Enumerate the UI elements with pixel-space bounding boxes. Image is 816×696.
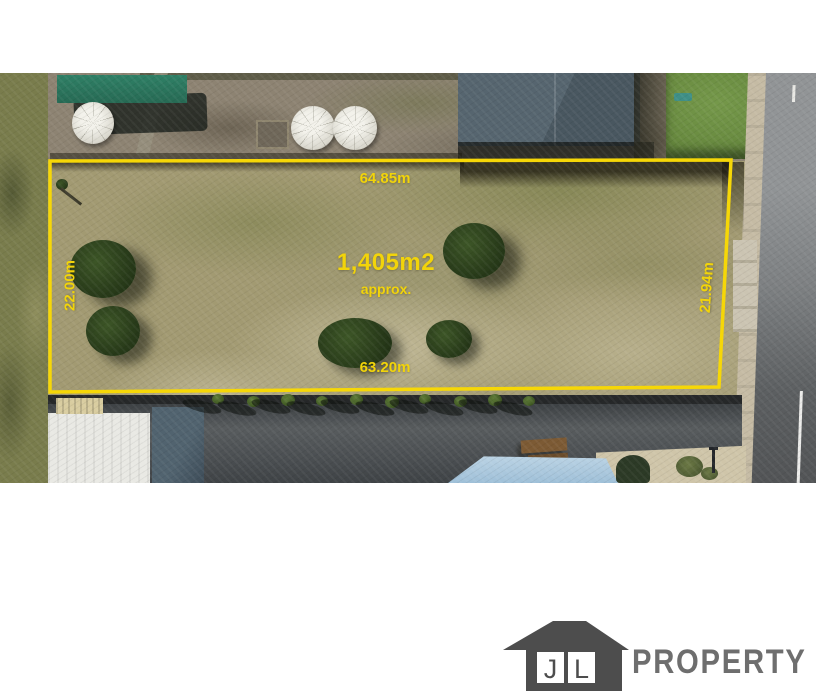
property-listing-image: 64.85m 1,405m2 approx. 63.20m 22.00m 21.… (0, 0, 816, 696)
logo-initial-l: L (574, 654, 589, 684)
house-roof (503, 621, 629, 650)
photo-grain (0, 73, 816, 483)
jl-property-logo: J L PROPERTY (500, 615, 812, 693)
logo-initial-j: J (544, 654, 558, 684)
aerial-photo: 64.85m 1,405m2 approx. 63.20m 22.00m 21.… (0, 73, 816, 483)
label-bottom-length: 63.20m (340, 359, 430, 376)
label-area: 1,405m2 (316, 249, 456, 277)
house-icon: J L (502, 617, 630, 691)
label-top-length: 64.85m (340, 170, 430, 187)
label-area-qualifier: approx. (316, 281, 456, 297)
logo-wordmark: PROPERTY (632, 645, 807, 679)
label-left-width: 22.00m (62, 241, 79, 331)
